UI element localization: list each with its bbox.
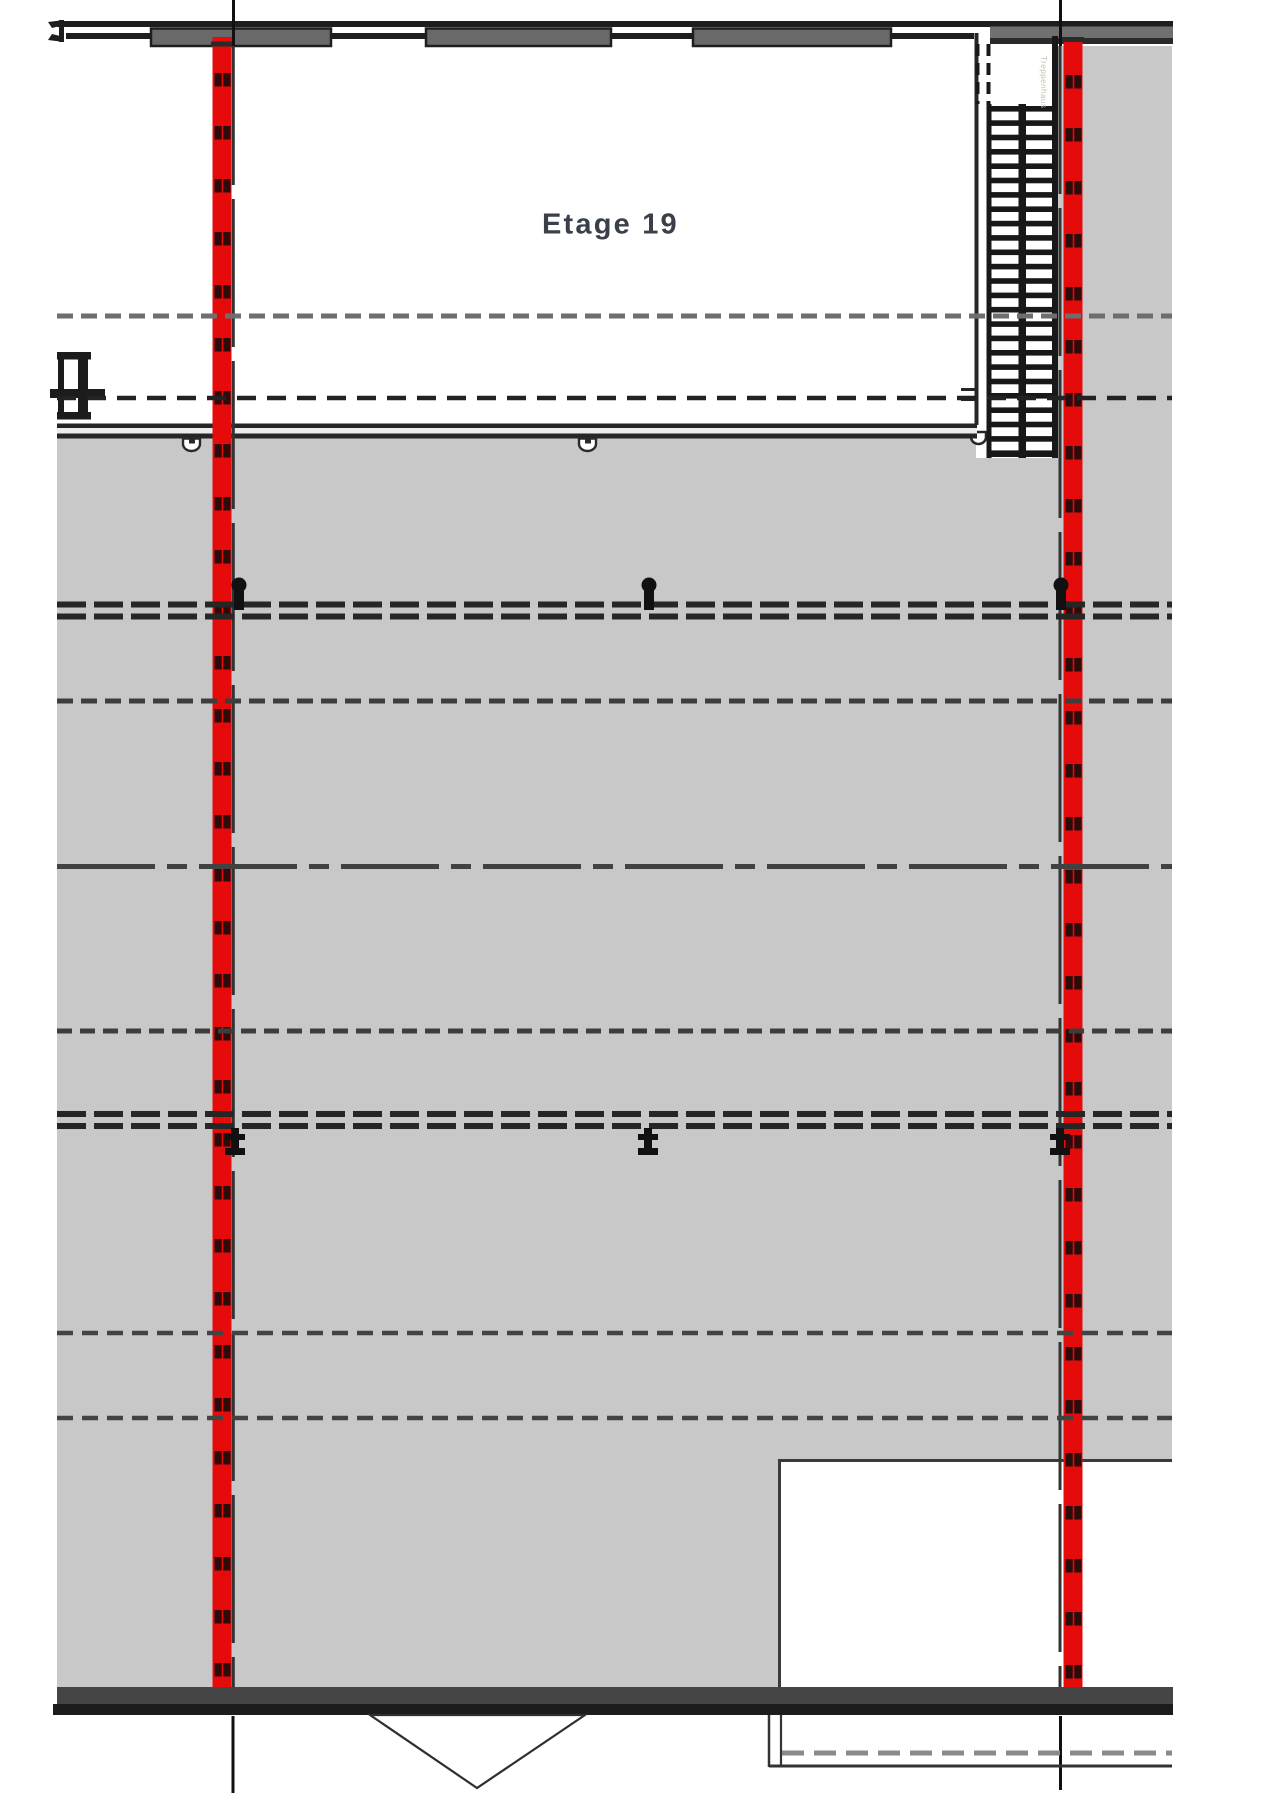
svg-text:Etage 19: Etage 19 (542, 209, 679, 241)
svg-text:Treppenhaus: Treppenhaus (1039, 56, 1048, 108)
